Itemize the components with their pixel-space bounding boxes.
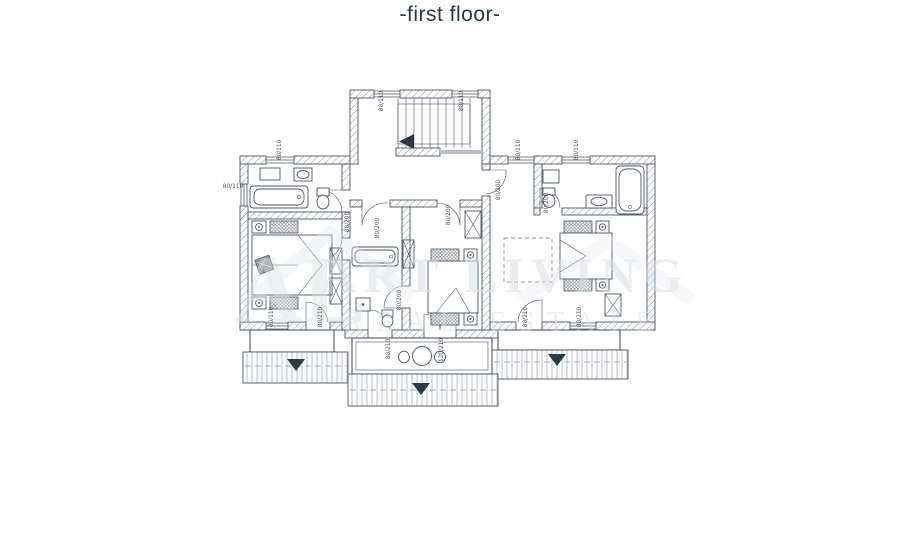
stair-direction-arrow-icon [399,134,414,149]
floor-plan-drawing: AL ART LIVING REAL ESTATE 80/11080/11080… [0,0,900,555]
balcony-chair-icon [399,351,410,363]
watermark-line1: ART LIVING [321,247,690,303]
dimension-label: 120/210 [439,338,445,362]
cabinet-icon [260,168,280,180]
nightstand-icon [596,221,609,233]
sink-icon [294,168,312,181]
dimension-label: 80/210 [577,306,583,327]
floor-plan-page: -first floor- [0,0,900,555]
dimension-label: 80/200 [375,217,381,238]
left-bathroom [250,168,329,209]
dimension-label: 80/200 [345,211,351,232]
center-terrace [348,374,498,406]
sink-icon [586,195,612,208]
dimension-label: 80/200 [544,192,550,213]
toilet-icon [317,188,329,209]
dimension-label: 80/200 [496,179,502,200]
dimension-label: 80/200 [446,204,452,225]
balcony-table-icon [413,347,432,366]
center-balcony [352,338,492,374]
watermark: AL ART LIVING REAL ESTATE [233,233,692,343]
right-bathroom [543,166,644,214]
dimension-label: 80/110 [277,139,283,160]
bathtub-icon [616,166,644,214]
dimension-label: 80/210 [318,306,324,327]
dimension-label: 80/110 [574,139,580,160]
watermark-line2: REAL ESTATE [345,307,666,338]
pillow-icon [270,221,298,233]
nightstand-icon [252,221,266,233]
cabinet-icon [543,170,559,183]
wardrobe-icon [465,211,481,238]
pillow-icon [564,221,592,233]
dimension-label: 80/210 [523,306,529,327]
dimension-label: 80/110 [459,90,465,111]
dimension-label: 80/110 [223,184,244,190]
dimension-label: 80/110 [379,90,385,111]
dimension-label: 80/110 [516,139,522,160]
dimension-label: 80/200 [397,289,403,310]
dimension-label: 80/110 [269,306,275,327]
dimension-label: 80/210 [386,338,392,359]
bathtub-icon [250,186,308,208]
